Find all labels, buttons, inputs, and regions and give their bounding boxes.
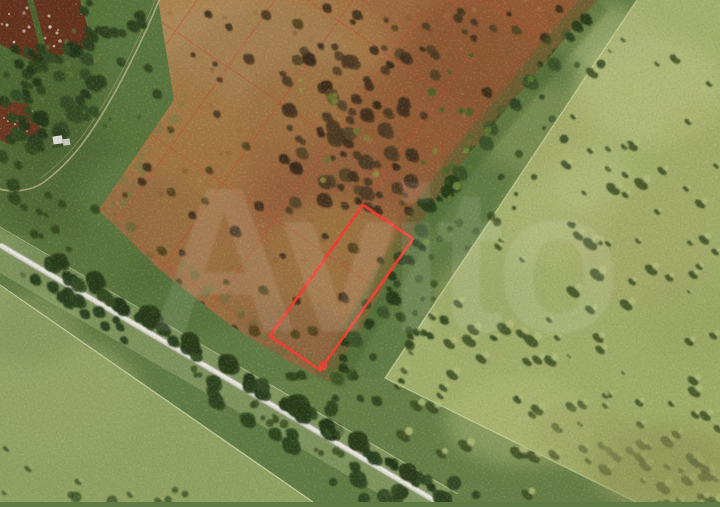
svg-text:Avito: Avito — [150, 145, 614, 375]
